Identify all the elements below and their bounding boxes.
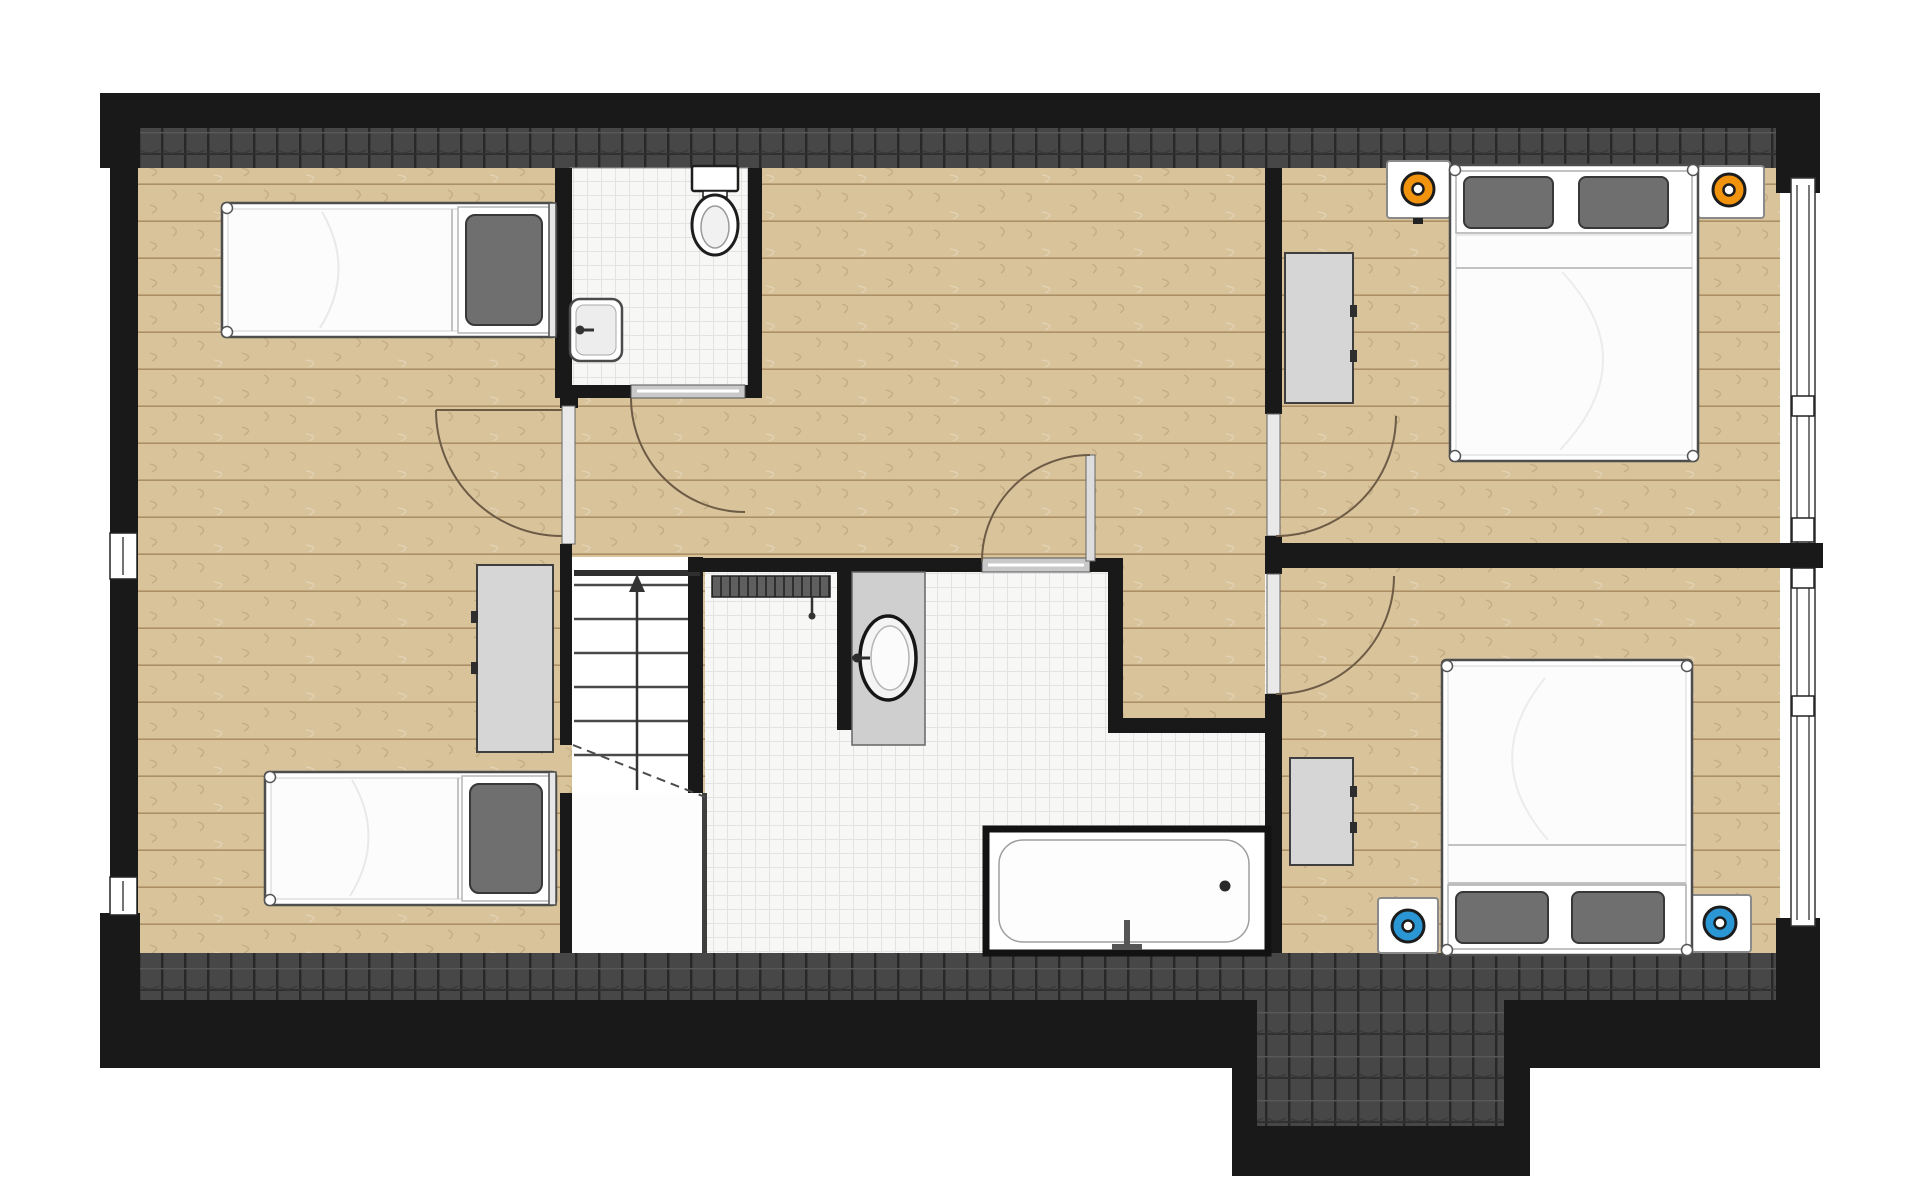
bed-double-bottom-pillow-b xyxy=(1572,892,1664,943)
wall-wc-left xyxy=(555,168,572,398)
bath-radiator xyxy=(712,576,830,597)
lamp-blue-left-center xyxy=(1403,921,1414,932)
understairs-floor xyxy=(572,793,705,953)
bed-double-bottom-knob-c xyxy=(1442,945,1453,956)
window-right-divider-2 xyxy=(1792,518,1814,542)
bath-door-open-leaf xyxy=(1086,455,1095,561)
wall-sink-stub xyxy=(837,558,852,730)
wall-bedrooms-divider xyxy=(1282,543,1823,568)
wall-hall-bedrooms-a xyxy=(1265,168,1282,414)
wall-stairs-left-a xyxy=(560,544,572,745)
dresser-tr-handle-b xyxy=(1350,350,1357,362)
dresser-top-right xyxy=(1285,253,1353,403)
toilet-tank xyxy=(692,166,738,191)
bed-double-top-knob-a xyxy=(1450,165,1461,176)
window-right-divider-4 xyxy=(1792,696,1814,716)
roof-band-top xyxy=(138,128,1780,168)
leftroom-door-leaf xyxy=(562,406,575,544)
wall-stairs-left-b xyxy=(560,793,572,953)
outer-wall-top xyxy=(100,93,1812,128)
bathtub-faucet-bar xyxy=(1112,944,1142,950)
lamp-orange-right-center xyxy=(1724,185,1735,196)
bed-double-bottom-knob-a xyxy=(1442,661,1453,672)
desk-left-room xyxy=(477,565,553,752)
understairs-tile-edge xyxy=(702,793,707,953)
dresser-tr-handle-a xyxy=(1350,305,1357,317)
bath-washbasin-inner xyxy=(871,626,909,690)
window-right-divider-1 xyxy=(1792,396,1814,416)
bed-double-bottom-pillow-a xyxy=(1456,892,1548,943)
wall-wc-bottom xyxy=(555,385,631,398)
dresser-br-handle-b xyxy=(1350,822,1357,833)
roof-band-bottom xyxy=(138,953,1780,1000)
roof-bump-shingle xyxy=(1257,1000,1504,1126)
wall-wc-right xyxy=(748,168,762,398)
toilet-bowl-inner xyxy=(701,206,729,248)
bathtub-drain xyxy=(1220,881,1231,892)
nightstand-tr-left-nub xyxy=(1413,218,1423,224)
wall-hall-bedrooms-b xyxy=(1265,536,1282,574)
wc-faucet xyxy=(576,326,585,335)
bed-single-bottom-knob-b xyxy=(265,895,276,906)
attic-floorplan-drawing xyxy=(0,0,1920,1200)
corner-bottom-left xyxy=(100,913,140,1068)
outer-wall-bottom xyxy=(100,1000,1812,1068)
dresser-br-handle-a xyxy=(1350,786,1357,797)
bed-double-top-pillow-b xyxy=(1579,177,1668,228)
bed-double-top-knob-d xyxy=(1688,451,1699,462)
lamp-orange-left-center xyxy=(1413,184,1424,195)
bed-single-top-knob-a xyxy=(222,203,233,214)
bed-double-bottom-knob-b xyxy=(1682,661,1693,672)
lamp-blue-right-center xyxy=(1715,918,1726,929)
wall-bath-top-a xyxy=(688,558,982,572)
floorplan-canvas xyxy=(0,0,1920,1200)
bed-single-bottom-knob-a xyxy=(265,772,276,783)
bed-single-top-pillow xyxy=(466,215,542,325)
outer-wall-left xyxy=(110,128,138,918)
wall-wc-bottom-end xyxy=(745,385,762,398)
bed-single-top-headboard xyxy=(549,203,556,337)
wall-bath-step-v xyxy=(1108,558,1123,733)
hall-nook-wood xyxy=(1123,570,1265,718)
bed-double-top-knob-c xyxy=(1450,451,1461,462)
bed-single-top-knob-b xyxy=(222,327,233,338)
bed-double-top-knob-b xyxy=(1688,165,1699,176)
br-bedroom-door-leaf xyxy=(1267,574,1280,694)
shapes-root xyxy=(100,93,1823,1176)
bed-double-bottom-body xyxy=(1448,666,1686,884)
bath-faucet xyxy=(853,654,862,663)
bed-single-bottom-pillow xyxy=(470,784,542,893)
window-right-divider-3 xyxy=(1792,568,1814,588)
bed-single-bottom-headboard xyxy=(549,772,556,905)
desk-handle-b xyxy=(471,662,478,674)
desk-handle-a xyxy=(471,611,478,623)
wall-bath-step-h xyxy=(1108,718,1282,733)
bed-double-top-pillow-a xyxy=(1464,177,1553,228)
tr-bedroom-door-leaf xyxy=(1267,414,1280,536)
bath-radiator-valve xyxy=(809,613,816,620)
wall-stairs-right xyxy=(688,557,703,793)
dresser-bottom-right xyxy=(1290,758,1353,865)
bed-double-bottom-knob-d xyxy=(1682,945,1693,956)
bathtub-faucet-stem xyxy=(1124,920,1130,948)
corner-bottom-right xyxy=(1776,918,1820,1068)
